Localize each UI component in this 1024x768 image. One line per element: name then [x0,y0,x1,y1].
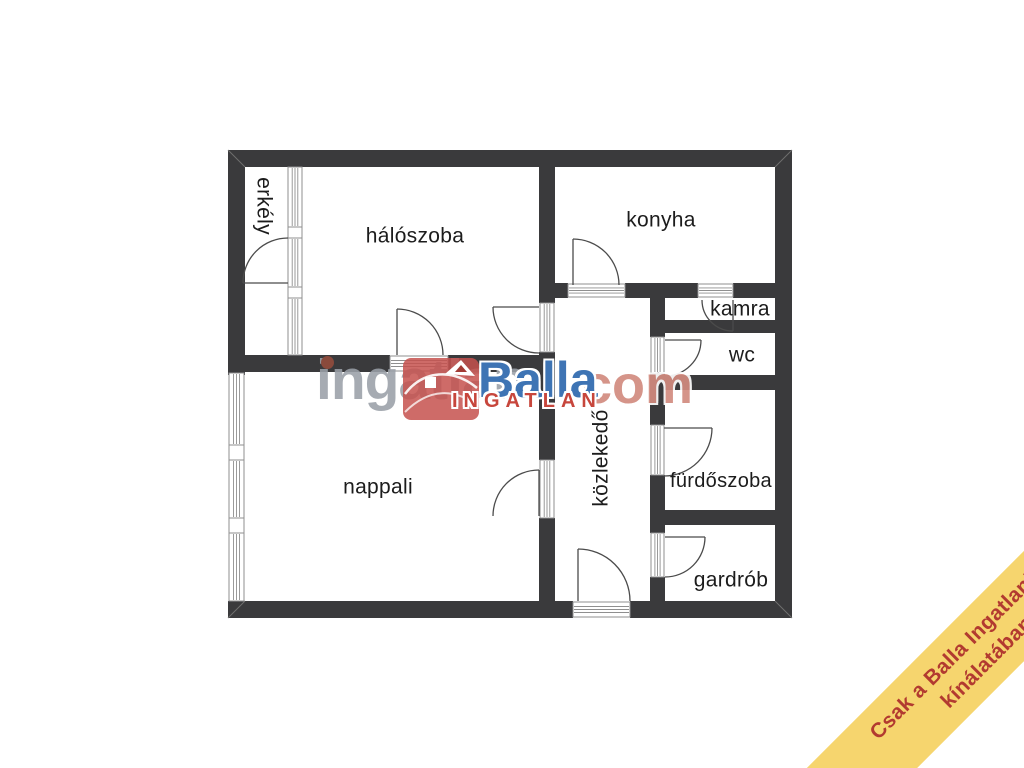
room-label-haloszoba: hálószoba [366,226,464,247]
room-label-gardrob: gardrób [694,570,768,591]
floor-plan-drawing [0,0,1024,768]
walls [228,150,792,618]
room-label-konyha: konyha [626,210,696,231]
room-label-erkely: erkély [254,177,275,235]
room-label-kozlekedo: közlekedő [591,409,612,506]
floor-plan-page: erkély hálószoba konyha kamra wc közleke… [0,0,1024,768]
room-label-furdoszoba: fürdőszoba [670,471,772,491]
room-label-wc: wc [729,345,755,366]
room-label-kamra: kamra [710,299,770,320]
room-label-nappali: nappali [343,477,413,498]
